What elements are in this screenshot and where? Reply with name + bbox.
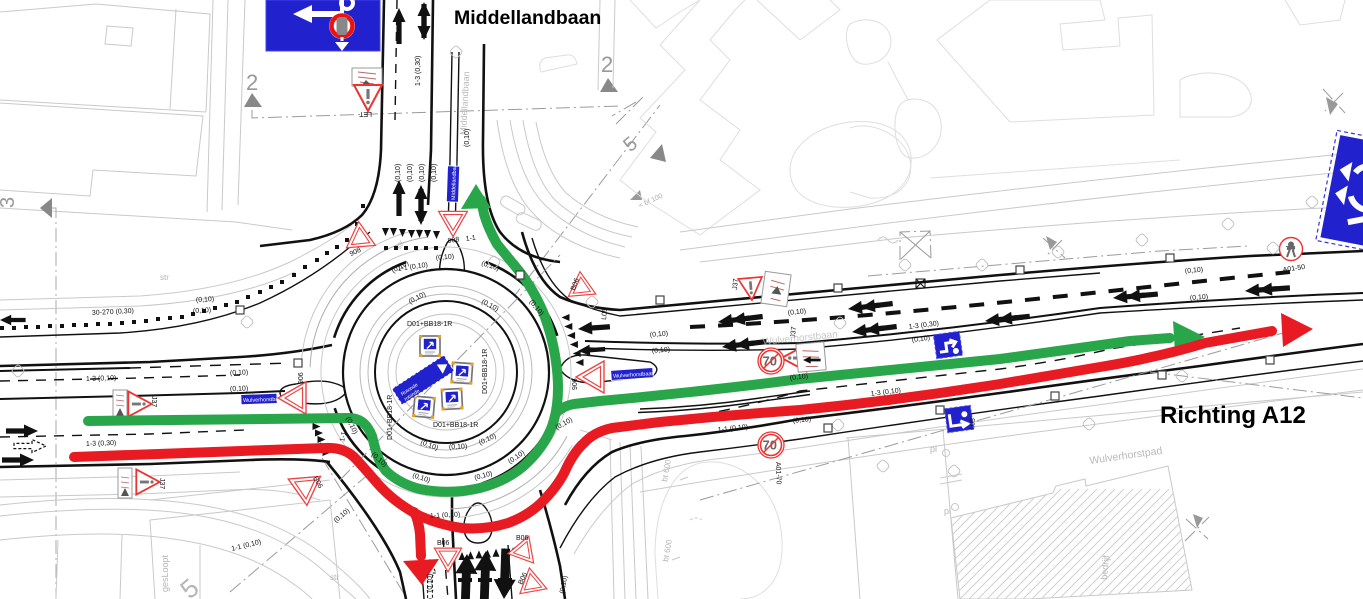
svg-text:(0,10): (0,10) (193, 307, 212, 315)
svg-text:2: 2 (601, 52, 613, 77)
svg-text:L05: L05 (601, 308, 609, 320)
svg-text:L05: L05 (969, 418, 977, 430)
svg-text:J37: J37 (150, 396, 157, 407)
svg-text:906: 906 (572, 378, 579, 390)
svg-text:1-1: 1-1 (465, 235, 476, 243)
svg-text:1-3 (0,30): 1-3 (0,30) (86, 440, 117, 448)
svg-text:Middellandbaan: Middellandbaan (454, 7, 601, 29)
svg-text:(0,10): (0,10) (407, 164, 414, 182)
svg-text:Richting A12: Richting A12 (1160, 402, 1306, 429)
svg-text:gesLoopt: gesLoopt (160, 554, 170, 592)
svg-text:B06: B06 (437, 540, 450, 547)
svg-text:D01+BB18-1R: D01+BB18-1R (433, 422, 478, 429)
svg-text:J37: J37 (158, 478, 165, 489)
svg-text:3: 3 (0, 197, 19, 208)
svg-text:(0,10): (0,10) (230, 385, 249, 393)
svg-text:D01+BB18-1R: D01+BB18-1R (387, 395, 394, 440)
svg-text:LET: LET (358, 110, 372, 117)
svg-text:D01+BB18-1R: D01+BB18-1R (407, 321, 452, 328)
svg-text:J37: J37 (732, 278, 740, 290)
svg-text:(0,10): (0,10) (419, 164, 426, 182)
svg-text:pl: pl (944, 506, 951, 516)
svg-text:1-3 (0,10): 1-3 (0,10) (86, 375, 117, 383)
svg-text:B06: B06 (516, 535, 529, 542)
svg-text:D01+BB18-1R: D01+BB18-1R (482, 349, 489, 394)
svg-text:2: 2 (246, 70, 258, 95)
svg-text:1-3 (0,30): 1-3 (0,30) (415, 56, 422, 86)
svg-text:(0,10): (0,10) (427, 574, 434, 592)
svg-text:(0,10): (0,10) (1185, 267, 1204, 275)
svg-text:(0,10): (0,10) (449, 443, 468, 451)
svg-text:(0,10): (0,10) (230, 369, 249, 377)
svg-text:906: 906 (298, 372, 305, 384)
svg-text:(0,10): (0,10) (464, 129, 471, 147)
svg-text:(0,10): (0,10) (431, 164, 438, 182)
svg-text:pl: pl (930, 444, 937, 454)
svg-text:str: str (330, 573, 339, 582)
svg-text:str: str (160, 273, 169, 282)
svg-text:(0,10): (0,10) (1190, 294, 1209, 302)
svg-text:(0,10): (0,10) (395, 164, 402, 182)
svg-text:A01-70: A01-70 (774, 462, 782, 485)
svg-text:(0,10): (0,10) (196, 296, 215, 304)
